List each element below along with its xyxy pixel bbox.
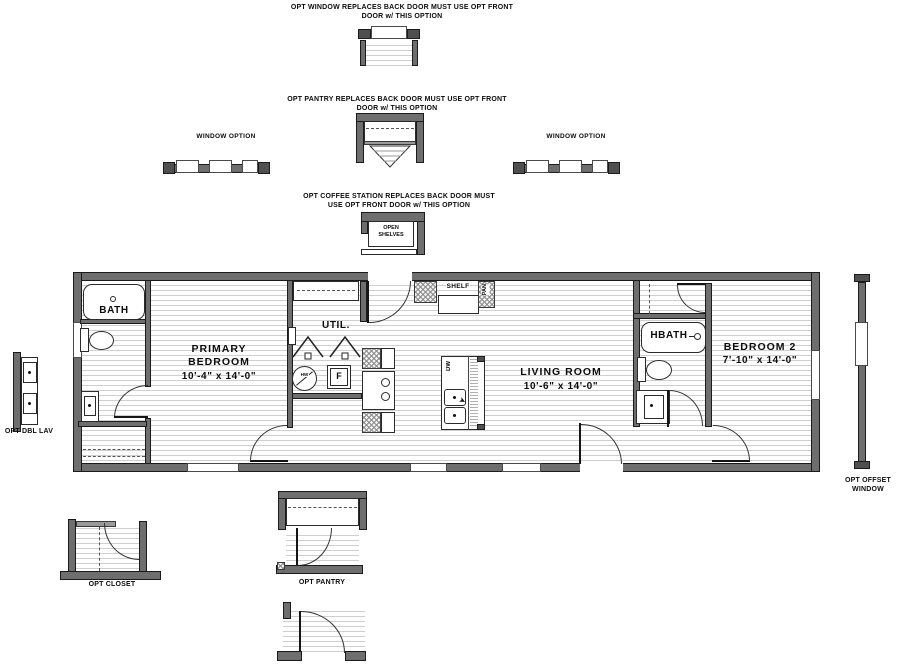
window-option-right-caption: WINDOW OPTION — [526, 134, 626, 141]
closet-shelf-dash1 — [83, 449, 145, 450]
opt-closet-wall-left — [68, 519, 76, 575]
hbath-label: HBATH — [643, 331, 695, 341]
offset-window-wall — [858, 282, 866, 462]
closet-shelf-dash2 — [83, 456, 145, 457]
wall-kitchen-entry — [360, 281, 367, 322]
counter-hatch-3 — [414, 281, 437, 303]
primary-bedroom-label-line1: PRIMARY — [150, 344, 288, 355]
dbl-lav-faucet-1 — [28, 371, 31, 374]
opt-window-jamb-right — [412, 40, 418, 66]
window-option-left-caption: WINDOW OPTION — [176, 134, 276, 141]
opt-pantry-wall-bottom — [276, 565, 363, 574]
opt-offset-caption-line2: WINDOW — [840, 486, 896, 493]
opt-pantry-hatch — [277, 562, 285, 570]
opt-pantry-top-caption-line1: OPT PANTRY REPLACES BACK DOOR MUST USE O… — [242, 96, 552, 103]
primary-bedroom-label-line2: BEDROOM — [150, 357, 288, 368]
util-bifold-doors — [292, 333, 362, 360]
coffee-counter — [361, 249, 417, 255]
util-label: UTIL. — [312, 321, 360, 331]
bedroom2-dims: 7'-10" x 14'-0" — [707, 356, 813, 366]
window-kitchen — [410, 463, 447, 472]
coffee-open-label: OPEN — [368, 226, 414, 232]
range — [362, 371, 395, 410]
floorplan-canvas: OPT WINDOW REPLACES BACK DOOR MUST USE O… — [0, 0, 900, 669]
bath-tub-drain — [110, 296, 116, 302]
window-option-right-cap2 — [608, 162, 620, 174]
island-cap-top — [477, 356, 485, 362]
exterior-wall-left — [73, 272, 82, 472]
wall-hbath-bedroom2 — [705, 283, 712, 427]
opt-coffee-caption-line1: OPT COFFEE STATION REPLACES BACK DOOR MU… — [244, 193, 554, 200]
front-door-opening — [580, 463, 623, 472]
opt-closet-wall-bottom — [60, 571, 161, 580]
living-room-label: LIVING ROOM — [495, 367, 627, 378]
window-option-left-win3 — [242, 160, 258, 173]
window-option-right-cap1 — [513, 162, 525, 174]
window-option-left-cap2 — [258, 162, 270, 174]
opt-window-floor — [366, 41, 412, 66]
coffee-jamb-right — [417, 221, 425, 255]
opt-pantry-caption: OPT PANTRY — [290, 579, 354, 586]
primary-closet — [293, 281, 359, 301]
wall-bath-upper — [145, 280, 151, 387]
opt-pantry-shelves — [286, 498, 359, 526]
opt-closet-caption: OPT CLOSET — [81, 581, 143, 588]
opt-pantry-jamb-left — [278, 498, 286, 530]
counter-hatch-1 — [362, 348, 381, 369]
range-burner-2 — [381, 392, 390, 401]
opt-coffee-caption-line2: USE OPT FRONT DOOR w/ THIS OPTION — [244, 202, 554, 209]
back-door-opening — [368, 272, 412, 281]
front-door-diagram-cap — [283, 602, 291, 619]
opt-pantry-jamb-right — [359, 498, 367, 530]
opt-window-caption-line1: OPT WINDOW REPLACES BACK DOOR MUST USE O… — [247, 4, 557, 11]
offset-window-cap-bottom — [854, 461, 870, 469]
hbath-sink — [644, 395, 664, 419]
island-sink-dot-1 — [453, 396, 456, 399]
opt-window-caption-line2: DOOR w/ THIS OPTION — [247, 13, 557, 20]
counter-1 — [381, 348, 395, 369]
pantry-top-door-swing — [362, 145, 418, 169]
hbath-tub-faucet — [694, 333, 701, 340]
primary-bedroom-dims: 10'-4" x 14'-0" — [150, 372, 288, 382]
shelf-cabinet — [438, 295, 479, 314]
opt-pantry-shelf-dash — [288, 507, 357, 508]
hbath-toilet-tank — [637, 357, 646, 382]
hbath-closet-rod-dash — [649, 284, 650, 314]
bath-sink-faucet — [88, 404, 91, 407]
coffee-jamb-left — [361, 221, 368, 234]
bath-door-leaf — [114, 416, 148, 418]
island-cap-bottom — [477, 424, 485, 430]
furnace-label: F — [327, 372, 351, 381]
primary-closet-rod-dash — [297, 290, 355, 291]
offset-window-window — [855, 322, 868, 366]
dishwasher-label: DW — [446, 361, 452, 371]
bath-toilet-tank — [80, 328, 89, 352]
opt-offset-caption-line1: OPT OFFSET — [840, 477, 896, 484]
exterior-wall-top — [73, 272, 820, 281]
opt-dbl-lav-caption: OPT DBL LAV — [0, 428, 58, 435]
pantry-top-shelf-dash — [366, 128, 414, 129]
opt-window-cap-left — [358, 29, 371, 39]
window-option-right-win2 — [559, 160, 582, 173]
opt-window-cap-right — [407, 29, 420, 39]
hbath-toilet-bowl — [646, 360, 672, 380]
counter-hatch-2 — [362, 412, 381, 433]
bath-toilet-bowl — [89, 331, 114, 350]
hbath-sink-faucet — [650, 404, 653, 407]
island-divider — [468, 356, 469, 430]
window-option-left-win2 — [209, 160, 232, 173]
wall-util-bottom — [292, 393, 362, 399]
dbl-lav-wall — [13, 352, 21, 432]
pan-label: PAN — [482, 284, 490, 295]
bath-label: BATH — [86, 306, 142, 316]
island-sink-dot-2 — [453, 414, 456, 417]
living-room-dims: 10'-6" x 14'-0" — [495, 382, 627, 392]
wall-hbath-top — [633, 313, 712, 319]
offset-window-cap-top — [854, 274, 870, 282]
bedroom2-label: BEDROOM 2 — [707, 342, 813, 353]
window-option-right-win1 — [526, 160, 549, 173]
window-option-left-win1 — [176, 160, 199, 173]
window-primary-bedroom — [187, 463, 239, 472]
front-door-diagram-wall-right — [345, 651, 366, 661]
shelf-label: SHELF — [437, 284, 479, 291]
counter-2 — [381, 412, 395, 433]
island-bar-stripe — [470, 359, 478, 427]
opt-closet-rod-dash — [99, 527, 100, 571]
dbl-lav-faucet-2 — [28, 402, 31, 405]
opt-window-window — [371, 26, 407, 39]
pantry-top-shelves — [364, 121, 416, 143]
opt-closet-wall-right — [139, 521, 147, 573]
opt-window-jamb-left — [360, 40, 366, 66]
range-burner-1 — [381, 378, 390, 387]
opt-pantry-top-caption-line2: DOOR w/ THIS OPTION — [242, 105, 552, 112]
window-option-left-cap1 — [163, 162, 175, 174]
window-option-right-win3 — [592, 160, 608, 173]
coffee-shelves-label: SHELVES — [368, 233, 414, 239]
front-door-diagram-wall-left — [277, 651, 302, 661]
water-heater-label: HW — [292, 373, 317, 378]
window-living-room — [502, 463, 541, 472]
